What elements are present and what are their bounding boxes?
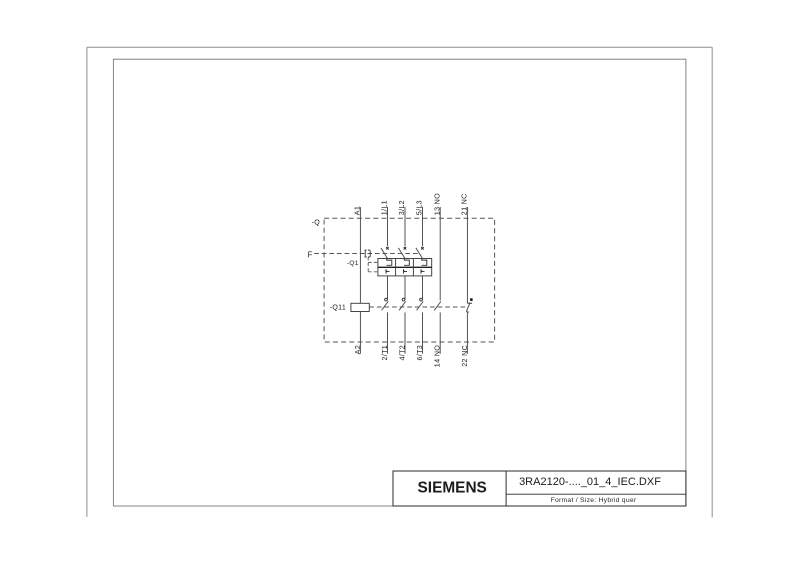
svg-text:3RA2120-...._01_4_IEC.DXF: 3RA2120-...._01_4_IEC.DXF — [519, 476, 661, 488]
svg-text:-Q1: -Q1 — [347, 260, 359, 267]
svg-text:22 NC: 22 NC — [460, 345, 469, 367]
svg-text:13 NO: 13 NO — [432, 193, 441, 215]
svg-text:A1: A1 — [353, 206, 362, 215]
svg-text:21 NC: 21 NC — [460, 193, 469, 215]
svg-text:14 NO: 14 NO — [433, 345, 442, 367]
svg-text:3/L2: 3/L2 — [397, 200, 406, 215]
svg-text:Format / Size: Hybrid quer: Format / Size: Hybrid quer — [551, 497, 637, 504]
svg-text:1/L1: 1/L1 — [380, 200, 389, 215]
svg-text:-Q: -Q — [312, 219, 321, 226]
svg-text:F: F — [308, 251, 313, 260]
svg-text:5/L3: 5/L3 — [415, 200, 424, 215]
svg-text:SIEMENS: SIEMENS — [418, 479, 487, 496]
svg-text:-Q11: -Q11 — [330, 305, 346, 312]
svg-text:6/T3: 6/T3 — [415, 345, 424, 361]
svg-text:2/T1: 2/T1 — [380, 345, 389, 361]
svg-text:4/T2: 4/T2 — [398, 345, 407, 361]
svg-text:A2: A2 — [353, 345, 362, 354]
